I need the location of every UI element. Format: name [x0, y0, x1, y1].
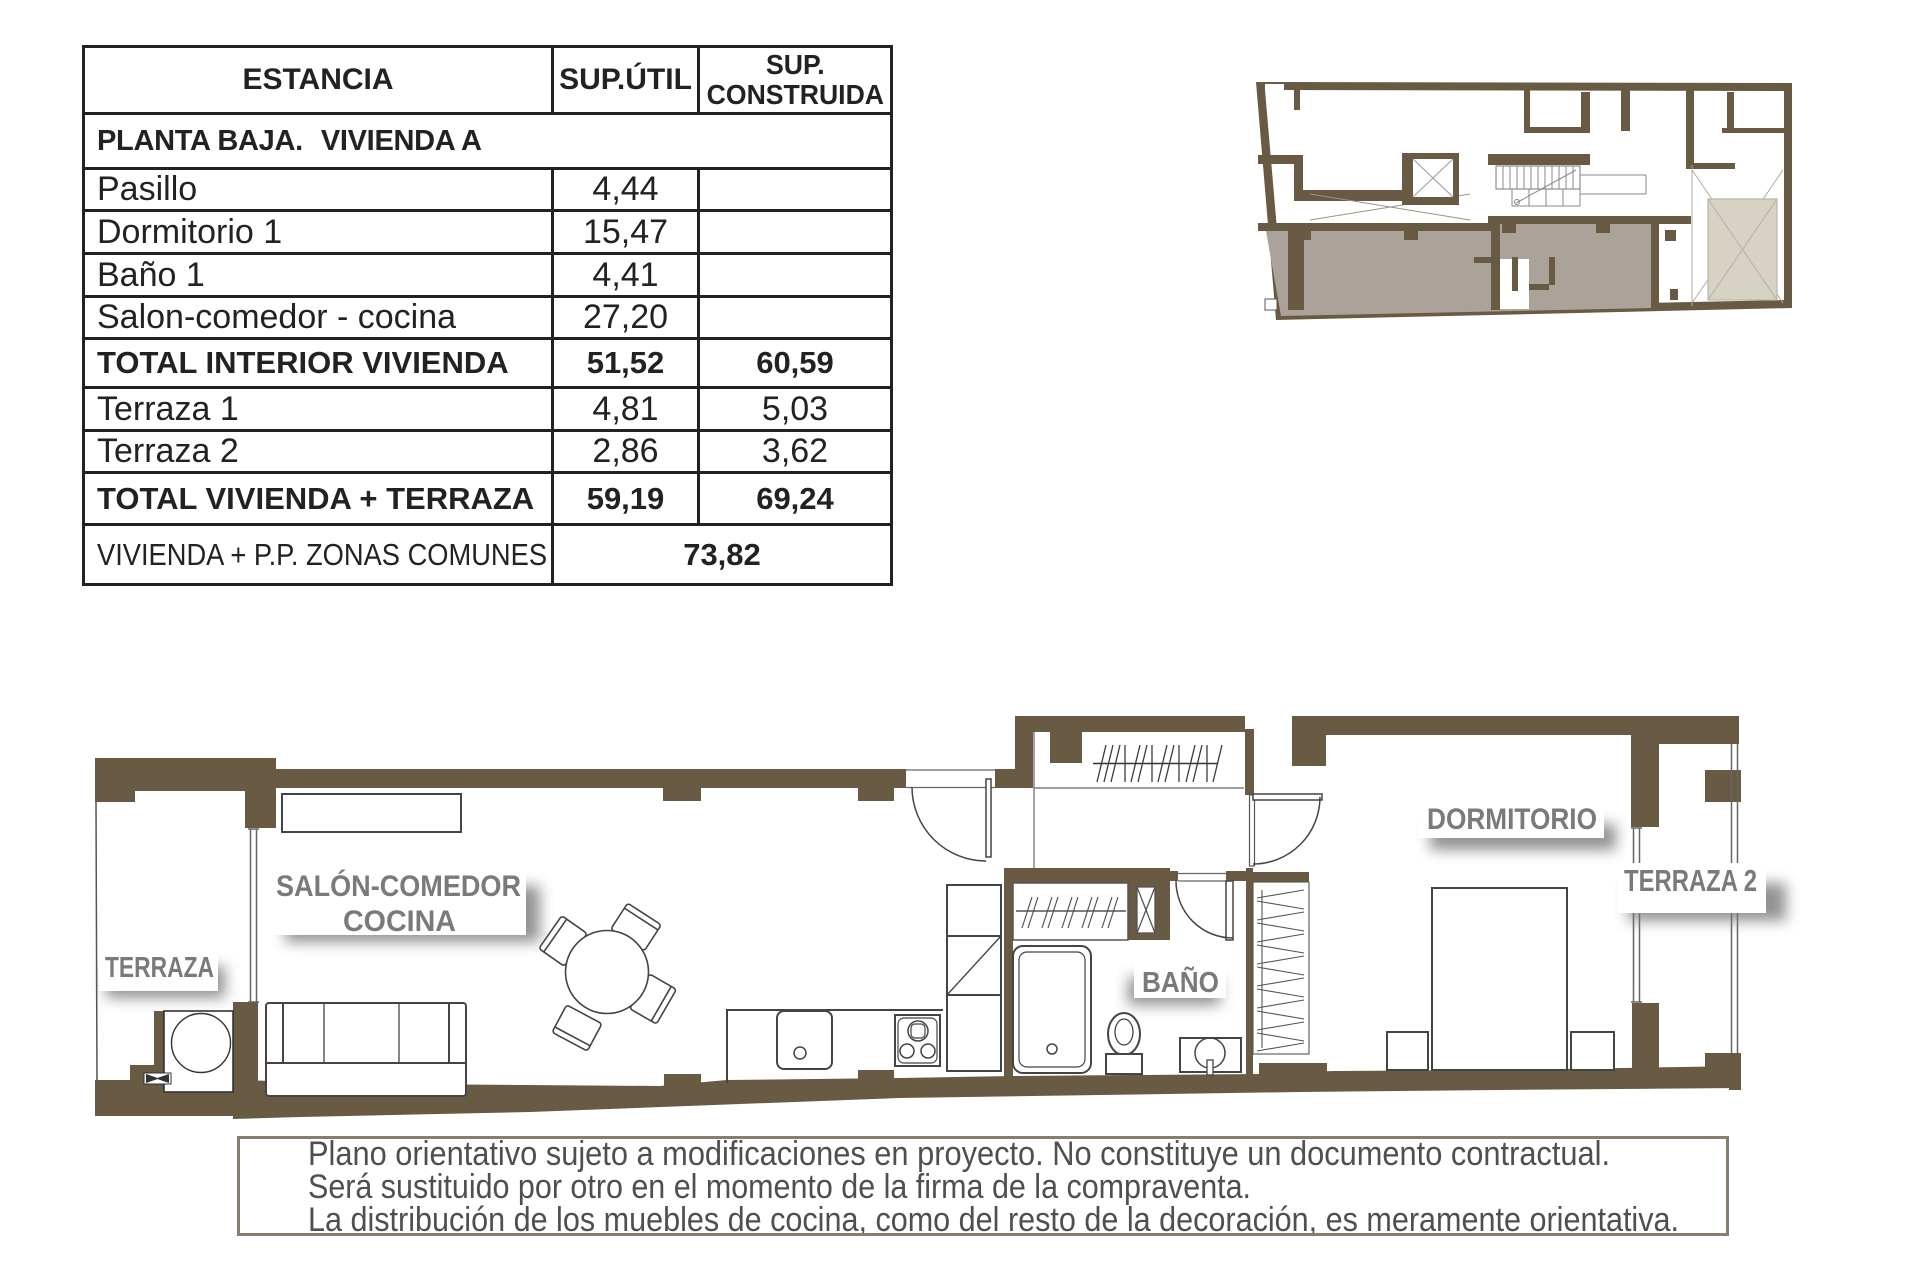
- svg-text:BAÑO: BAÑO: [1142, 965, 1219, 999]
- svg-text:TERRAZA: TERRAZA: [105, 952, 214, 984]
- svg-text:COCINA: COCINA: [343, 905, 456, 938]
- svg-text:DORMITORIO: DORMITORIO: [1427, 803, 1597, 836]
- svg-text:SALÓN-COMEDOR: SALÓN-COMEDOR: [276, 869, 521, 903]
- svg-text:TERRAZA 2: TERRAZA 2: [1624, 863, 1757, 898]
